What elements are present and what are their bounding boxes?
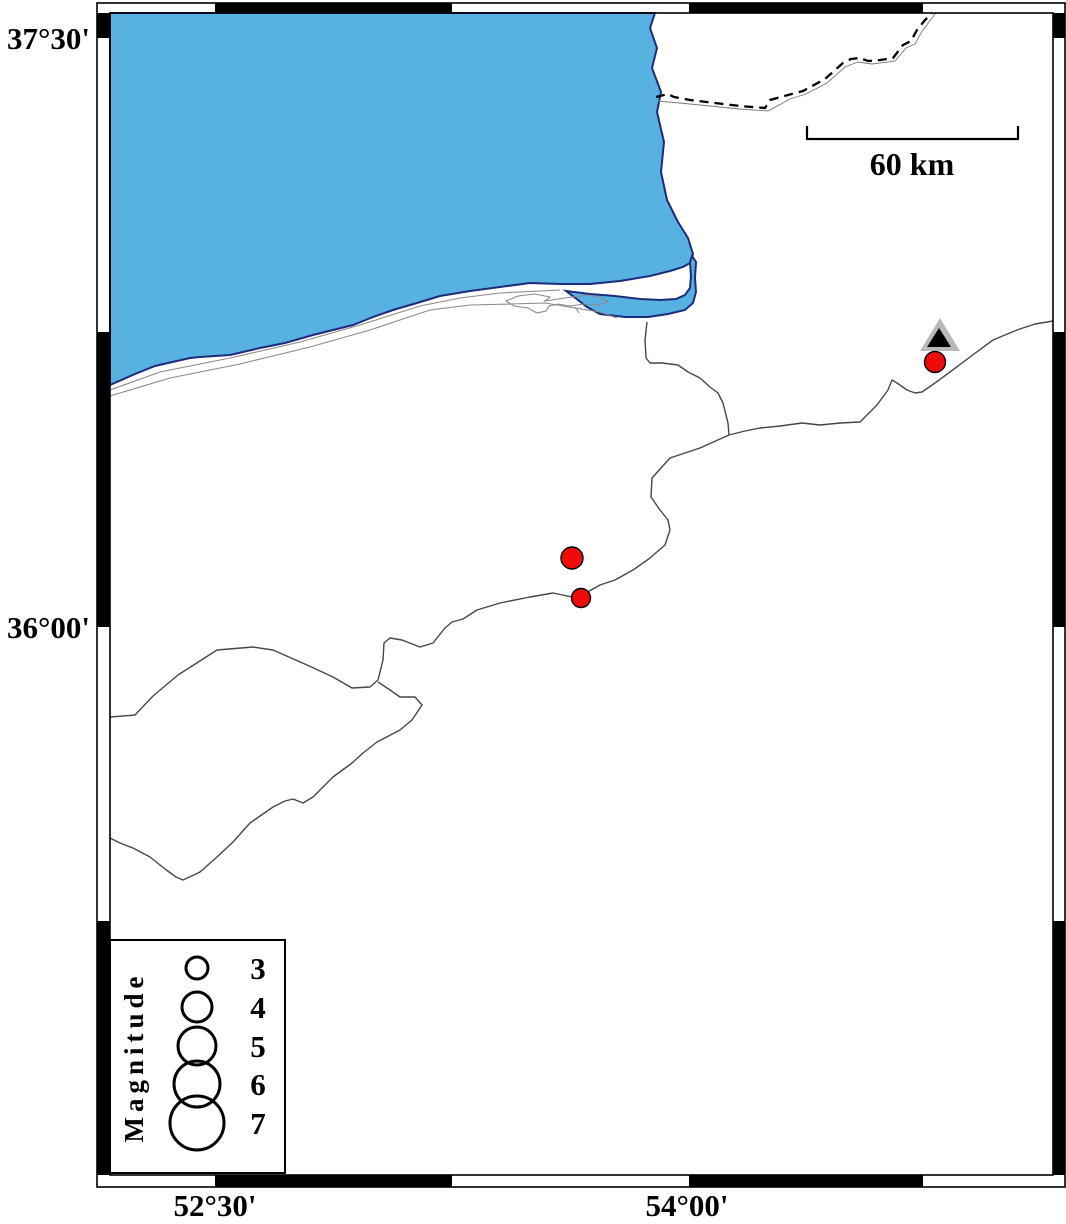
road-line-southwest: [110, 682, 422, 880]
legend-label-m7: 7: [250, 1106, 266, 1141]
seismicity-map: 60 km 37°30' 36°00' 52°30' 54°00': [0, 0, 1066, 1224]
scale-bar-bracket: [807, 126, 1018, 139]
border-companion-line: [658, 13, 936, 111]
legend-title: Magnitude: [119, 971, 149, 1142]
legend-label-m6: 6: [250, 1067, 266, 1102]
frame-segment: [1053, 13, 1065, 38]
lon-label-west: 52°30': [173, 1188, 256, 1223]
road-line-west: [110, 322, 729, 717]
magnitude-legend: Magnitude 3 4 5 6 7: [110, 940, 285, 1173]
water-layer: [110, 13, 696, 385]
lon-label-east: 54°00': [645, 1188, 728, 1223]
frame-segment: [1053, 921, 1065, 1175]
legend-numbers: 3 4 5 6 7: [250, 951, 266, 1141]
earthquake-marker: [572, 589, 591, 608]
frame-segment: [97, 332, 110, 627]
frame-segment: [215, 3, 452, 13]
scale-bar-label: 60 km: [870, 146, 955, 182]
earthquake-marker: [925, 352, 946, 373]
lat-label-top: 37°30': [7, 21, 90, 56]
symbol-layer: [561, 318, 960, 608]
frame-segment: [689, 3, 923, 13]
caspian-sea: [110, 13, 693, 385]
international-border-dashed-line: [656, 13, 932, 108]
legend-label-m5: 5: [250, 1029, 266, 1064]
road-line-east: [729, 321, 1053, 435]
scale-bar: 60 km: [807, 126, 1018, 182]
legend-label-m3: 3: [250, 951, 266, 986]
earthquake-marker: [561, 547, 583, 569]
frame-segment: [97, 13, 110, 38]
legend-label-m4: 4: [250, 990, 266, 1025]
frame-segment: [97, 921, 110, 1175]
frame-segment: [1053, 332, 1065, 627]
map-svg: 60 km 37°30' 36°00' 52°30' 54°00': [0, 0, 1066, 1224]
frame-segment: [689, 1175, 923, 1187]
border-layer: [656, 13, 936, 111]
lat-label-middle: 36°00': [7, 610, 90, 645]
frame-segment: [215, 1175, 452, 1187]
